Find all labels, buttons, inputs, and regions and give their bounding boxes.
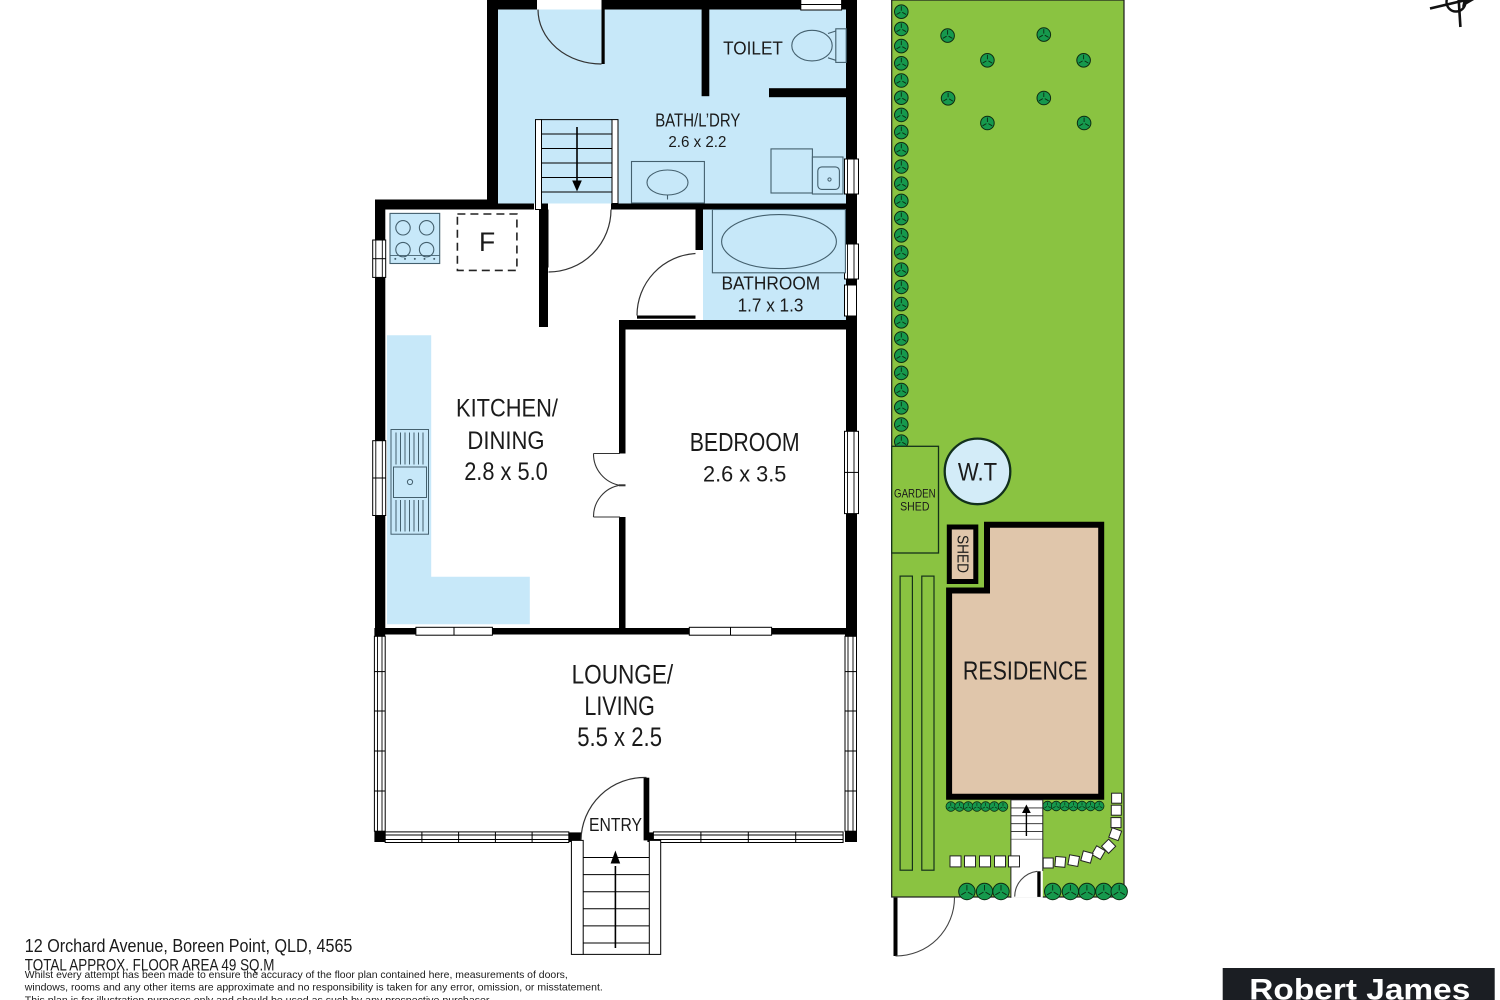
svg-text:ENTRY: ENTRY bbox=[589, 814, 642, 835]
svg-text:LIVING: LIVING bbox=[584, 691, 654, 721]
svg-text:GARDEN: GARDEN bbox=[894, 487, 936, 501]
svg-text:BEDROOM: BEDROOM bbox=[690, 427, 800, 457]
svg-text:1.7 x 1.3: 1.7 x 1.3 bbox=[738, 294, 804, 315]
svg-text:2.6 x 2.2: 2.6 x 2.2 bbox=[668, 134, 726, 151]
svg-text:12 Orchard Avenue, Boreen Poin: 12 Orchard Avenue, Boreen Point, QLD, 45… bbox=[25, 936, 353, 956]
svg-text:5.5 x 2.5: 5.5 x 2.5 bbox=[577, 722, 662, 752]
svg-text:DINING: DINING bbox=[467, 428, 544, 455]
svg-text:BATH/L’DRY: BATH/L’DRY bbox=[655, 109, 740, 130]
svg-text:SHED: SHED bbox=[954, 535, 971, 573]
svg-text:Robert James: Robert James bbox=[1249, 974, 1470, 1000]
svg-text:2.8 x 5.0: 2.8 x 5.0 bbox=[464, 459, 548, 486]
svg-text:KITCHEN/: KITCHEN/ bbox=[456, 396, 558, 423]
svg-text:BATHROOM: BATHROOM bbox=[722, 273, 821, 294]
svg-text:W.T: W.T bbox=[958, 458, 997, 486]
svg-text:This plan is for illustration: This plan is for illustration purposes o… bbox=[25, 996, 492, 1000]
svg-text:Whilst every attempt has been: Whilst every attempt has been made to en… bbox=[25, 970, 568, 981]
svg-text:RESIDENCE: RESIDENCE bbox=[963, 656, 1088, 686]
svg-text:windows, rooms and any other i: windows, rooms and any other items are a… bbox=[24, 983, 603, 994]
svg-text:TOILET: TOILET bbox=[723, 37, 783, 58]
svg-text:F: F bbox=[479, 227, 495, 257]
svg-text:SHED: SHED bbox=[900, 500, 930, 514]
svg-text:2.6 x 3.5: 2.6 x 3.5 bbox=[703, 461, 786, 486]
svg-text:LOUNGE/: LOUNGE/ bbox=[572, 660, 674, 690]
